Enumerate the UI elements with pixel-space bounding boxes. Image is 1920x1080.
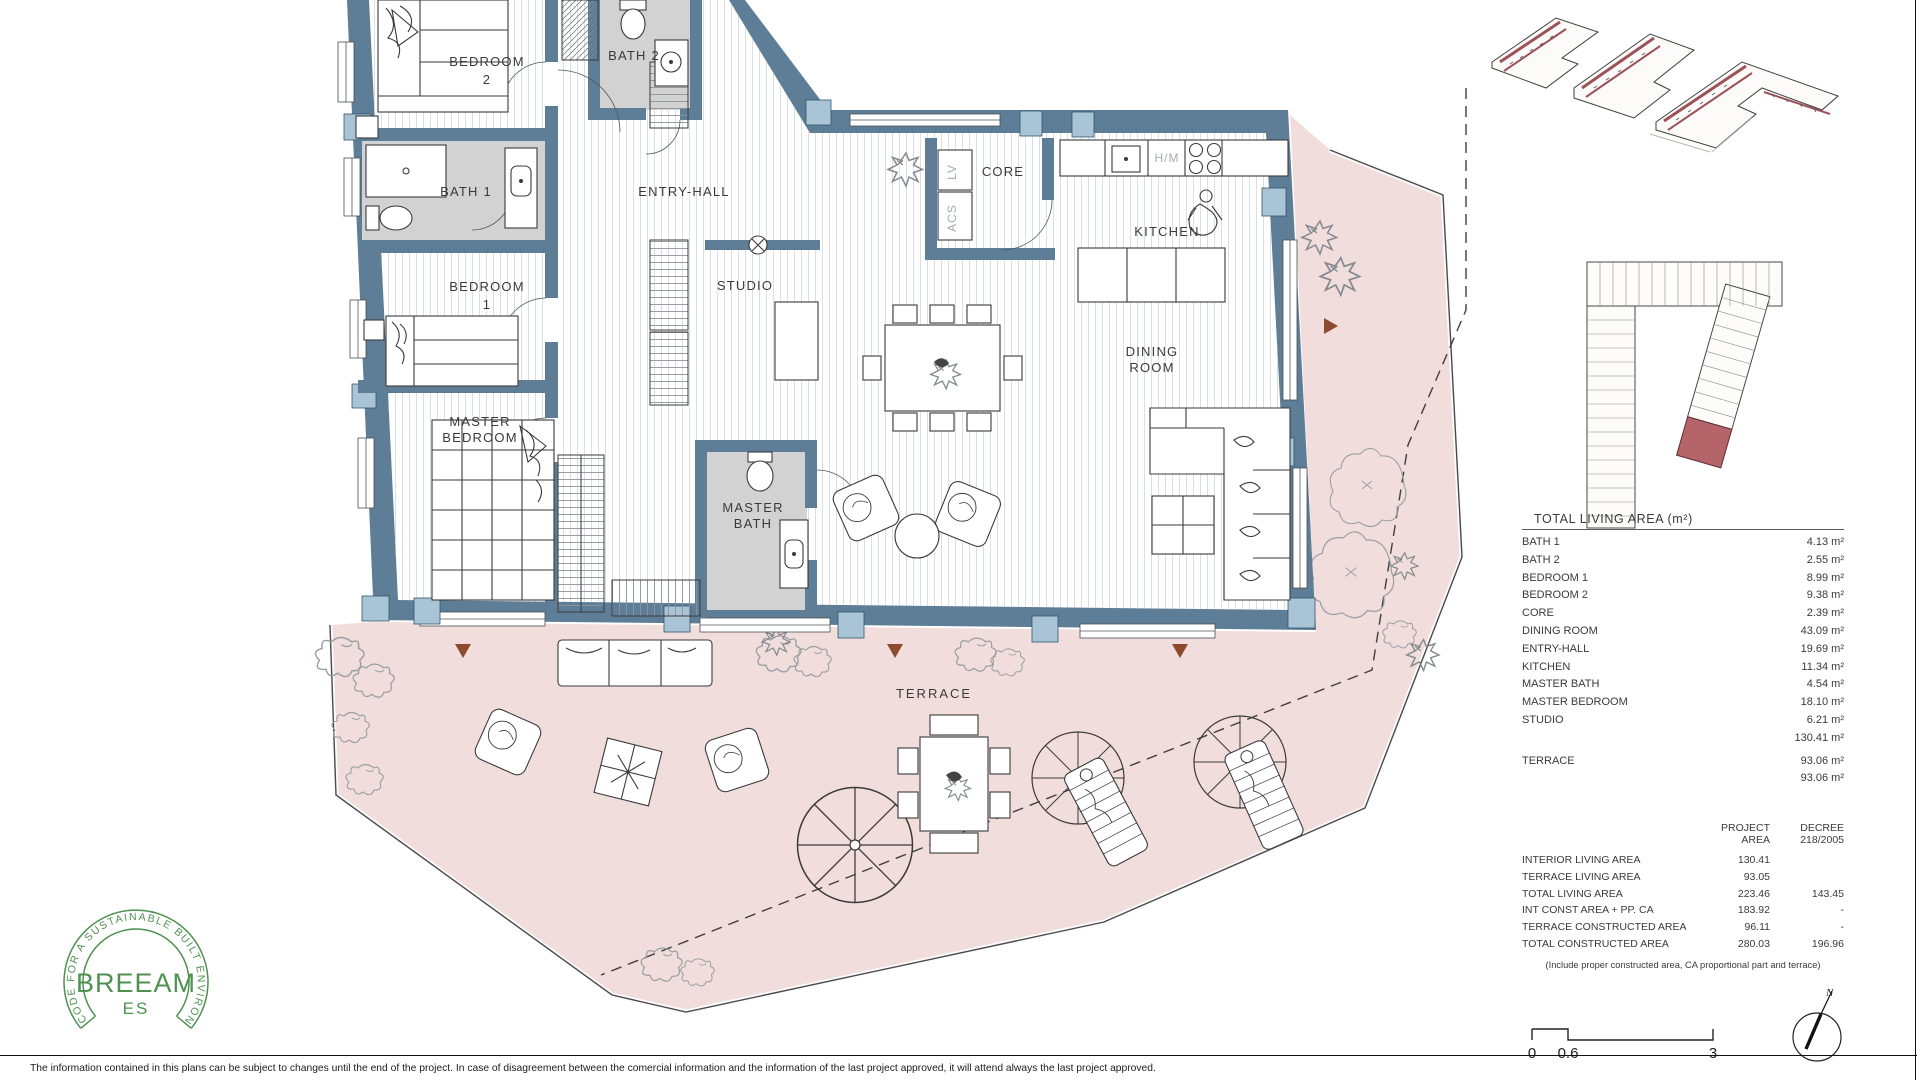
room-label-master-bath: MASTER (722, 500, 783, 515)
room-label-dining: DINING (1126, 344, 1179, 359)
closet (650, 240, 688, 330)
area-row: BEDROOM 18.99 m² (1522, 570, 1844, 588)
summary-note: (Include proper constructed area, CA pro… (1522, 960, 1844, 970)
scale-bar: 0 0.6 3 (1528, 1029, 1717, 1062)
panel-overlay: TOTAL LIVING AREA (m²) BATH 14.13 m² BAT… (1483, 0, 1866, 993)
summary-row: INTERIOR LIVING AREA130.41 (1522, 852, 1844, 869)
logo-ring-text: CODE FOR A SUSTAINABLE BUILT ENVIRONMENT (0, 0, 207, 1027)
summary-row: TOTAL CONSTRUCTED AREA280.03196.96 (1522, 936, 1844, 953)
breeam-logo: CODE FOR A SUSTAINABLE BUILT ENVIRONMENT… (0, 0, 208, 1028)
svg-text:1: 1 (483, 297, 491, 312)
area-row: STUDIO6.21 m² (1522, 712, 1844, 730)
apartment (338, 0, 1316, 642)
summary-table-header: PROJECTAREA DECREE218/2005 (1522, 822, 1844, 846)
north-compass: N (1793, 987, 1841, 1061)
master-bed (432, 420, 554, 600)
area-row: DINING ROOM43.09 m² (1522, 623, 1844, 641)
room-label-studio: STUDIO (717, 278, 773, 293)
room-label-bedroom2: BEDROOM (449, 54, 525, 69)
living-area-table-title: TOTAL LIVING AREA (m²) (1522, 512, 1844, 530)
area-row: BATH 22.55 m² (1522, 552, 1844, 570)
area-row: CORE2.39 m² (1522, 605, 1844, 623)
room-label-kitchen: KITCHEN (1134, 224, 1199, 239)
area-row: BEDROOM 29.38 m² (1522, 587, 1844, 605)
scale-06: 0.6 (1558, 1045, 1579, 1062)
closet (612, 580, 700, 616)
label-lv: LV (945, 164, 959, 180)
room-label-bath1: BATH 1 (440, 184, 492, 199)
room-label-terrace: TERRACE (896, 686, 972, 701)
area-row: MASTER BATH4.54 m² (1522, 676, 1844, 694)
room-label-core: CORE (982, 164, 1024, 179)
area-row: 93.06 m² (1522, 770, 1844, 788)
sheet-border-right (1915, 0, 1916, 1080)
area-row: 130.41 m² (1522, 730, 1844, 748)
label-acs: ACS (945, 204, 959, 232)
disclaimer-text: The information contained in this plans … (30, 1063, 1230, 1074)
svg-text:2: 2 (483, 72, 491, 87)
umbrella-large (798, 788, 913, 903)
summary-table: PROJECTAREA DECREE218/2005 INTERIOR LIVI… (1522, 822, 1844, 970)
area-row: BATH 14.13 m² (1522, 534, 1844, 552)
label-hm: H/M (1155, 151, 1180, 165)
summary-row: INT CONST AREA + PP. CA183.92- (1522, 902, 1844, 919)
room-label-entry-hall: ENTRY-HALL (638, 184, 729, 199)
room-label-bedroom1: BEDROOM (449, 279, 525, 294)
summary-row: TOTAL LIVING AREA223.46143.45 (1522, 886, 1844, 903)
living-area-table: TOTAL LIVING AREA (m²) BATH 14.13 m² BAT… (1522, 512, 1844, 788)
svg-text:BATH: BATH (734, 516, 773, 531)
scale-3: 3 (1709, 1045, 1717, 1062)
area-row: KITCHEN11.34 m² (1522, 659, 1844, 677)
svg-text:BEDROOM: BEDROOM (442, 430, 518, 445)
bedroom1-bed (364, 316, 518, 386)
sheet-border-bottom (0, 1055, 1917, 1056)
area-row: MASTER BEDROOM18.10 m² (1522, 694, 1844, 712)
logo-name: BREEAM (76, 968, 196, 998)
area-row: TERRACE93.06 m² (1522, 753, 1844, 771)
closet (650, 332, 688, 405)
summary-row: TERRACE CONSTRUCTED AREA96.11- (1522, 919, 1844, 936)
room-label-bath2: BATH 2 (608, 48, 660, 63)
floor-plan-sheet: BEDROOM 2 BATH 2 BATH 1 ENTRY-HALL BEDRO… (0, 0, 1920, 1080)
room-label-master-bedroom: MASTER (449, 414, 510, 429)
svg-text:CODE FOR A SUSTAINABLE BUILT E: CODE FOR A SUSTAINABLE BUILT ENVIRONMENT (0, 0, 207, 1027)
summary-row: TERRACE LIVING AREA93.05 (1522, 869, 1844, 886)
logo-region: ES (123, 999, 150, 1018)
area-row: ENTRY-HALL19.69 m² (1522, 641, 1844, 659)
svg-text:ROOM: ROOM (1129, 360, 1174, 375)
scale-0: 0 (1528, 1045, 1536, 1062)
shaft (562, 0, 598, 60)
